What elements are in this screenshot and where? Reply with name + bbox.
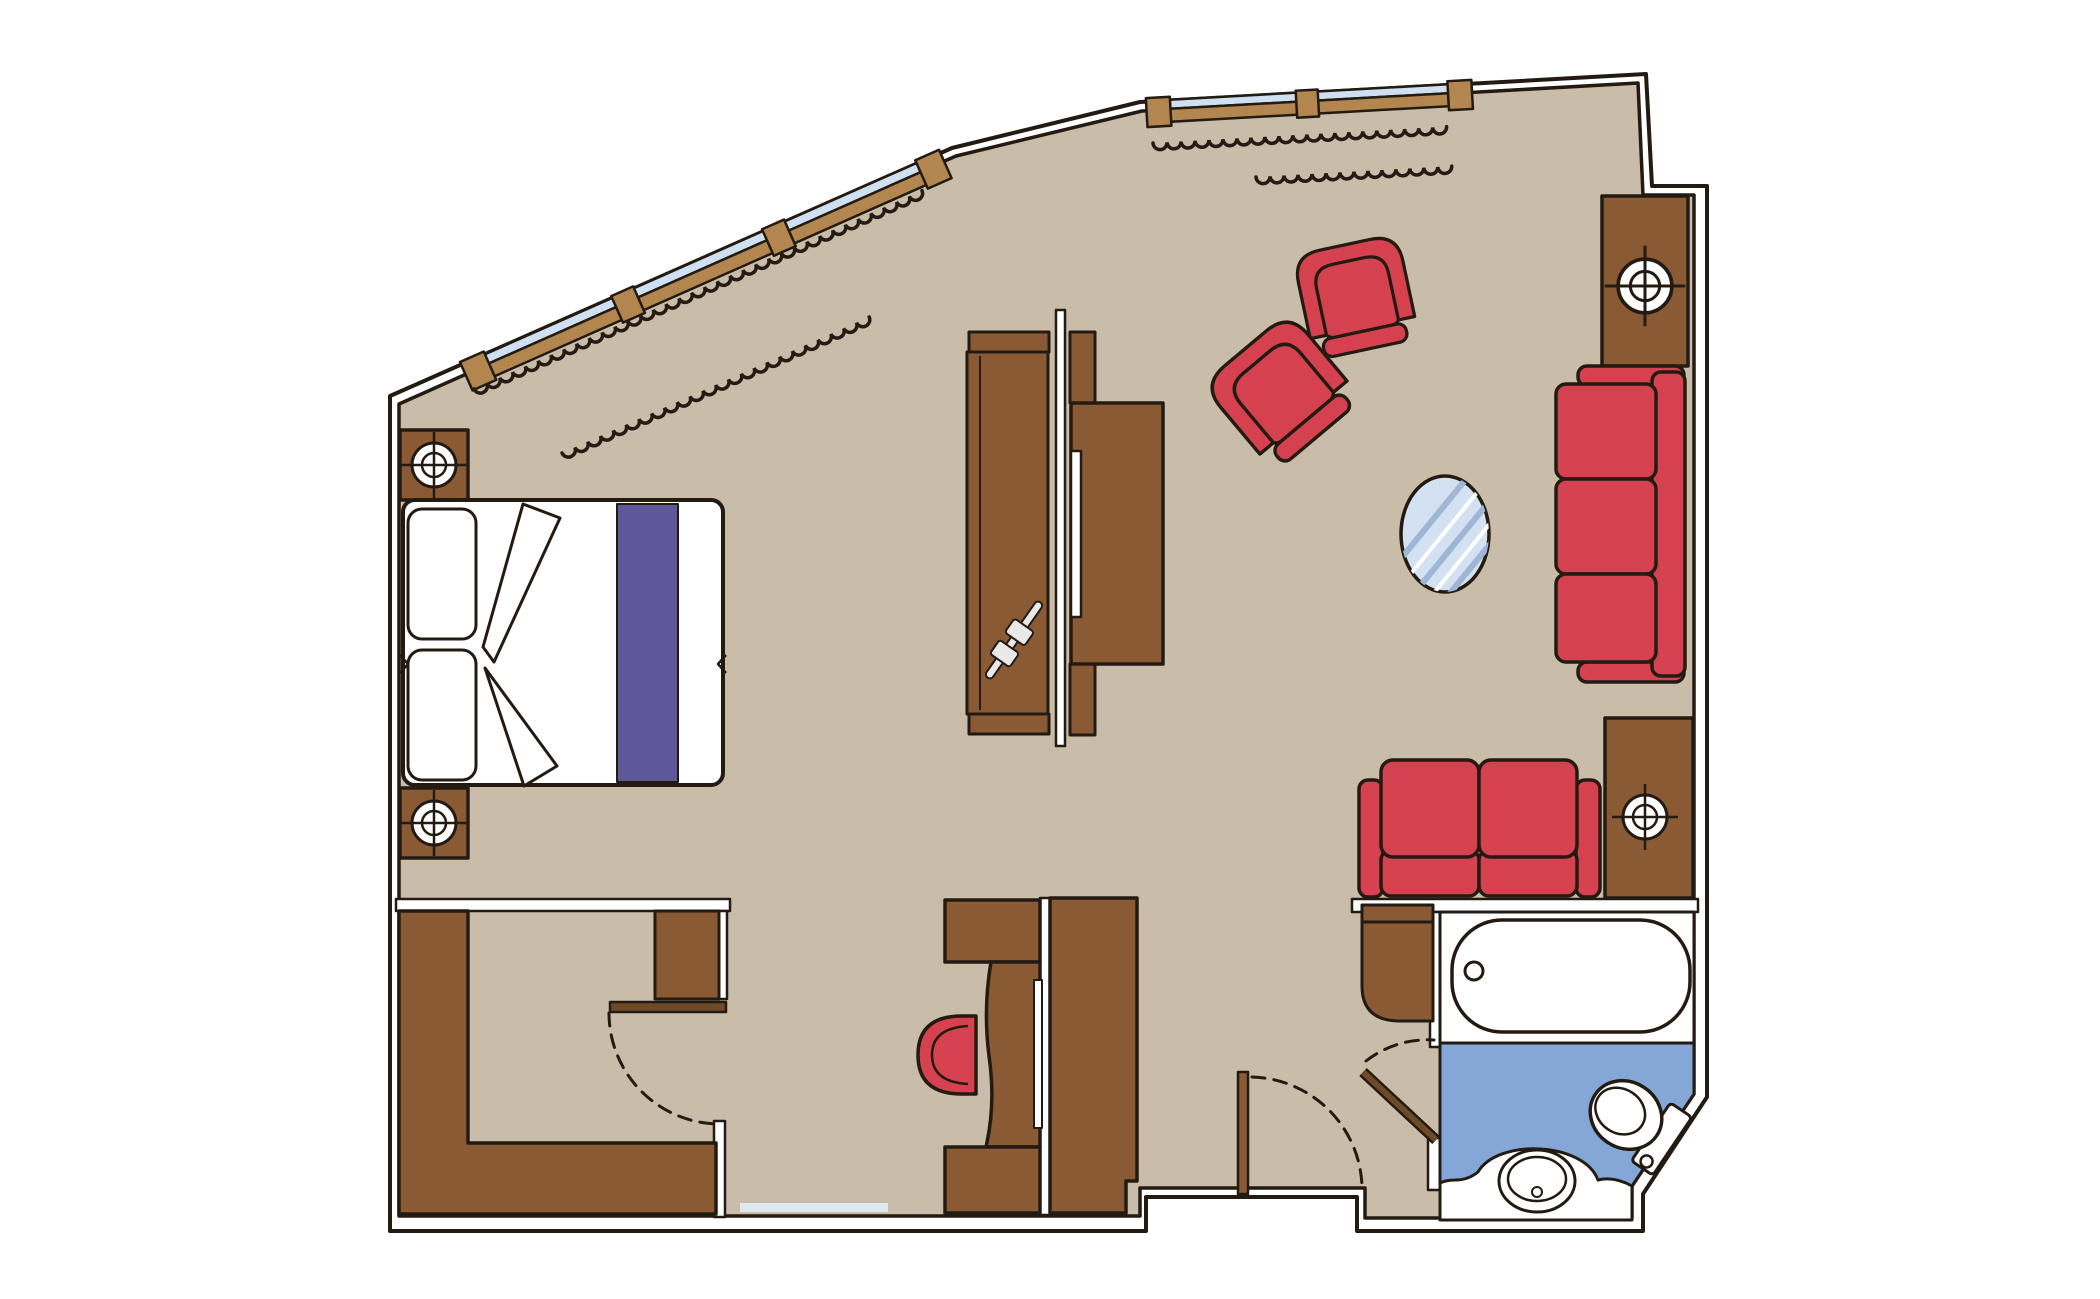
loveseat-cushion xyxy=(1381,760,1479,857)
entry-wardrobe xyxy=(1050,898,1137,1213)
wardrobe-top-cap xyxy=(969,332,1049,352)
dressing-table-mirror xyxy=(1034,980,1042,1128)
corner-cabinet xyxy=(1362,922,1433,1021)
threshold-mat xyxy=(740,1203,888,1212)
loveseat-cushion xyxy=(1479,760,1577,857)
double-bed xyxy=(400,500,726,786)
window-end-cap xyxy=(1146,97,1172,127)
window-mullion xyxy=(1296,90,1319,118)
wardrobe-bottom-cap xyxy=(969,714,1049,734)
tv-cabinet-upper xyxy=(1070,332,1095,403)
washbasin xyxy=(1499,1150,1575,1212)
window-end-cap xyxy=(1447,80,1473,110)
floor-plan-drawing xyxy=(0,0,2100,1299)
dressing-door-leaf xyxy=(610,1002,726,1012)
entry-wall-stub xyxy=(1238,1072,1248,1194)
tv-screen xyxy=(1071,451,1081,617)
loveseat-armrest xyxy=(1576,780,1600,897)
dressing-room-wall xyxy=(396,899,730,911)
tv-partition-wall xyxy=(1056,310,1065,746)
bathtub xyxy=(1452,920,1690,1032)
bed-runner xyxy=(617,504,678,782)
three-seat-sofa xyxy=(1556,366,1685,682)
corner-cabinet-cap xyxy=(1362,905,1433,922)
dressing-stool xyxy=(918,1016,976,1094)
dressing-table xyxy=(986,962,1040,1147)
dressing-table-top-cap xyxy=(945,900,1040,962)
pillow xyxy=(408,509,476,639)
tv-cabinet-lower xyxy=(1070,664,1095,735)
sofa-cushion xyxy=(1556,479,1656,574)
dressing-cabinet xyxy=(655,911,719,999)
dressing-table-bottom-cap xyxy=(945,1147,1040,1213)
bathtub-drain xyxy=(1465,962,1483,980)
tv-console xyxy=(1071,403,1163,664)
sofa-cushion xyxy=(1556,384,1656,479)
loveseat xyxy=(1359,760,1600,897)
sofa-cushion xyxy=(1556,574,1656,662)
pillow xyxy=(408,650,476,780)
floor-plan-page xyxy=(0,0,2100,1299)
washbasin-drain xyxy=(1532,1187,1542,1197)
